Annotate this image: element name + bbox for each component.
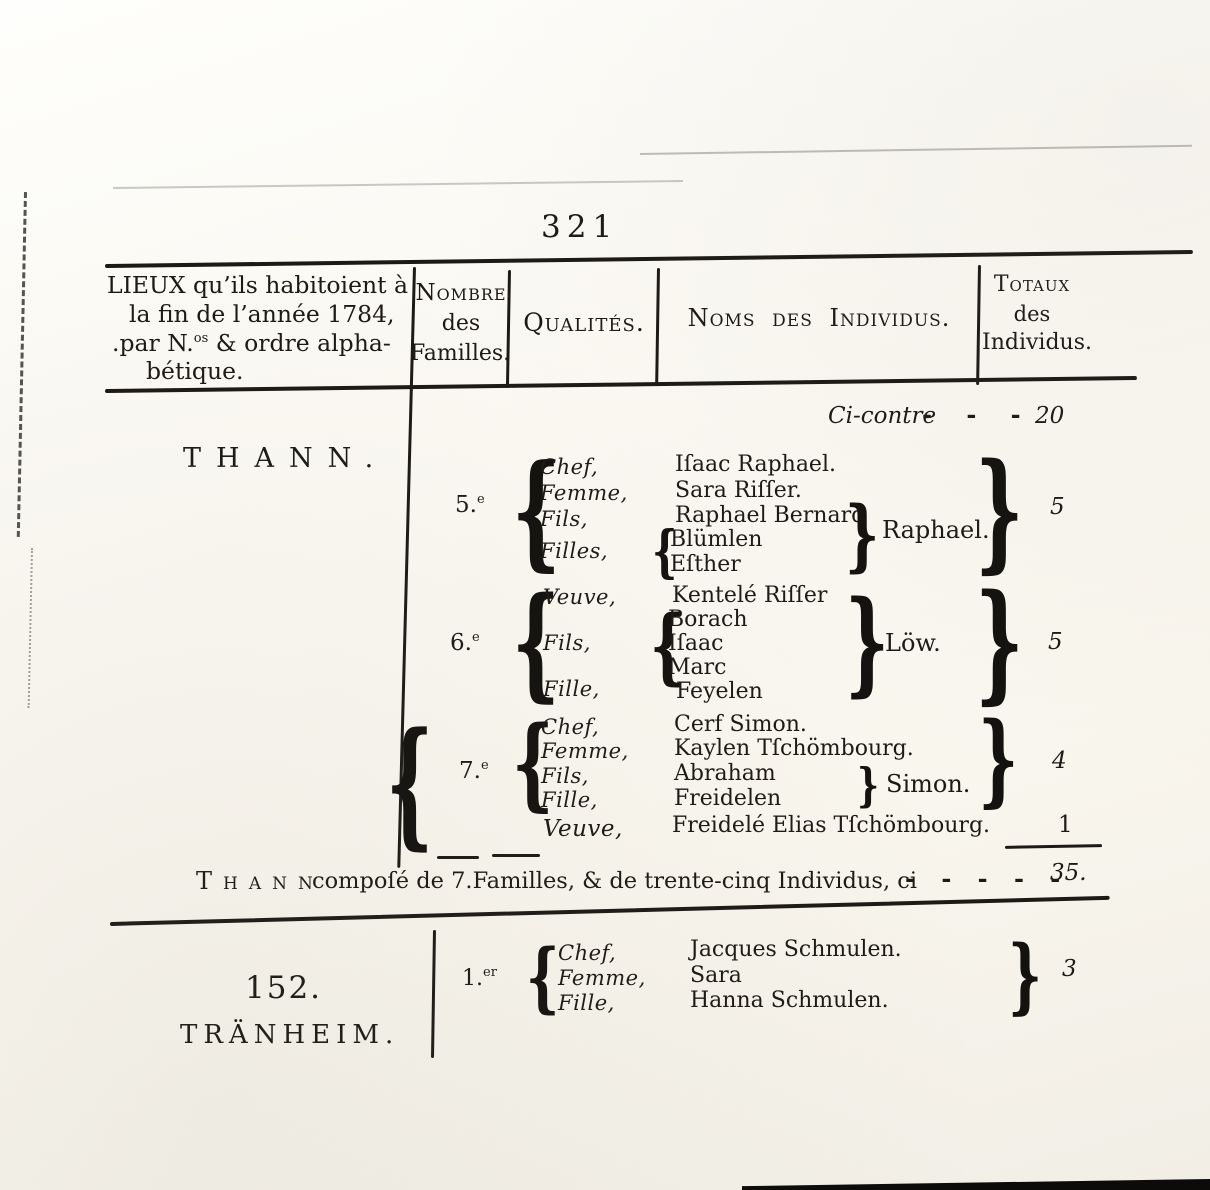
- family-surname: Simon.: [886, 770, 970, 798]
- family-total: 5: [1048, 629, 1063, 655]
- individual-name: Iſaac Raphael.: [675, 452, 836, 477]
- table-top-rule: [105, 250, 1193, 268]
- tranheim-family-number: 1.er: [462, 965, 497, 991]
- gutter-mark-lower: [28, 548, 33, 708]
- header-noms: Noms des Individus.: [660, 304, 978, 332]
- dash-mark: [437, 856, 479, 859]
- individual-name: Marc: [668, 655, 726, 680]
- gutter-mark-upper: [17, 192, 27, 537]
- scan-scratch-upper: [113, 180, 683, 189]
- individual-name: Sara Riſſer.: [675, 478, 802, 503]
- quality: Veuve,: [543, 816, 623, 842]
- quality: Fille,: [541, 788, 598, 812]
- ordinal-superscript: os: [194, 331, 209, 346]
- individual-name: Raphael Bernard: [675, 503, 865, 528]
- town-heading-tranheim: TRÄNHEIM.: [180, 1020, 399, 1050]
- quality: Chef,: [540, 455, 598, 479]
- header-lieux-line4: bétique.: [146, 357, 243, 385]
- summary-total: 35.: [1050, 860, 1087, 886]
- individual-name: Feyelen: [676, 679, 763, 704]
- family-surname: Raphael.: [882, 516, 990, 544]
- header-totaux: Totaux: [982, 272, 1082, 297]
- family-5-number: 5.e: [455, 492, 485, 518]
- individual-name: Freidelen: [674, 786, 781, 811]
- quality: Femme,: [541, 739, 629, 763]
- quality: Fils,: [541, 764, 589, 788]
- individual-name: Eſther: [670, 552, 741, 577]
- section-divider-rule: [110, 896, 1110, 926]
- total-sum-rule: [1005, 844, 1102, 849]
- carryover-dashes: - - -: [922, 400, 1021, 429]
- scanned-census-page: 321 LIEUX qu’ils habitoient à la fin de …: [0, 0, 1210, 1190]
- summary-text: compoſé de 7.Familles, & de trente-cinq …: [312, 868, 917, 894]
- quality: Fils,: [540, 507, 588, 531]
- summary-dashes: - - - - -: [905, 864, 1060, 893]
- surname-brace: }: [857, 762, 879, 808]
- town-heading-thann: THANN.: [183, 443, 388, 474]
- dash-mark: [492, 854, 540, 857]
- header-nombre: Nombre: [414, 280, 508, 306]
- header-totaux-des: des: [982, 302, 1082, 326]
- quality: Chef,: [541, 715, 599, 739]
- family-surname: Löw.: [885, 629, 941, 657]
- individual-name: Borach: [668, 607, 748, 632]
- scan-edge-bottom: [742, 1178, 1210, 1190]
- quality: Fils,: [543, 631, 591, 655]
- scan-scratch-top: [640, 145, 1192, 155]
- individual-name: Cerf Simon.: [674, 712, 807, 737]
- quality: Filles,: [540, 539, 608, 563]
- surname-brace: }: [845, 586, 889, 698]
- quality: Fille,: [558, 991, 615, 1015]
- individual-name: Freidelé Elias Tſchömbourg.: [672, 813, 990, 838]
- family-total: 3: [1062, 956, 1077, 982]
- header-nombre-des: des: [414, 311, 508, 336]
- surname-brace: }: [845, 496, 879, 574]
- family-total: 5: [1050, 494, 1065, 520]
- total-brace: }: [975, 446, 1024, 575]
- summary-town: Thann: [196, 867, 324, 895]
- individual-name: Iſaac: [668, 631, 723, 656]
- individual-name: Blümlen: [670, 527, 762, 552]
- header-lieux-line2: la fin de l’année 1784,: [129, 300, 395, 328]
- quality: Chef,: [558, 941, 616, 965]
- individual-name: Jacques Schmulen.: [690, 937, 902, 962]
- widow-total: 1: [1058, 812, 1073, 838]
- header-qualites: Qualités.: [511, 308, 657, 337]
- header-totaux-individus: Individus.: [982, 330, 1086, 355]
- tranheim-column-line: [431, 930, 436, 1058]
- total-brace: }: [975, 577, 1024, 706]
- quality: Veuve,: [543, 585, 616, 609]
- family-7-outer-brace: {: [386, 714, 433, 851]
- header-nombre-familles: Familles.: [410, 341, 510, 366]
- family-7-number: 7.e: [459, 758, 489, 784]
- carryover-total: 20: [1035, 403, 1064, 429]
- header-lieux-line3: .par N.os & ordre alpha-: [112, 329, 391, 357]
- individual-name: Sara: [690, 963, 742, 988]
- tranheim-number: 152.: [245, 970, 322, 1006]
- carryover-label: Ci-contre: [828, 403, 936, 429]
- quality: Femme,: [540, 481, 628, 505]
- page-number: 321: [541, 209, 618, 245]
- family-total: 4: [1052, 748, 1067, 774]
- family-6-number: 6.e: [450, 630, 480, 656]
- individual-name: Kentelé Riſſer: [672, 583, 827, 608]
- individual-name: Hanna Schmulen.: [690, 988, 889, 1013]
- total-brace: }: [978, 710, 1018, 810]
- total-brace: }: [1008, 934, 1042, 1016]
- individual-name: Abraham: [674, 761, 776, 786]
- quality: Femme,: [558, 966, 646, 990]
- header-bottom-rule: [105, 376, 1137, 393]
- header-lieux-line1: LIEUX qu’ils habitoient à: [107, 271, 408, 299]
- tranheim-family-brace: {: [526, 940, 559, 1015]
- quality: Fille,: [543, 677, 600, 701]
